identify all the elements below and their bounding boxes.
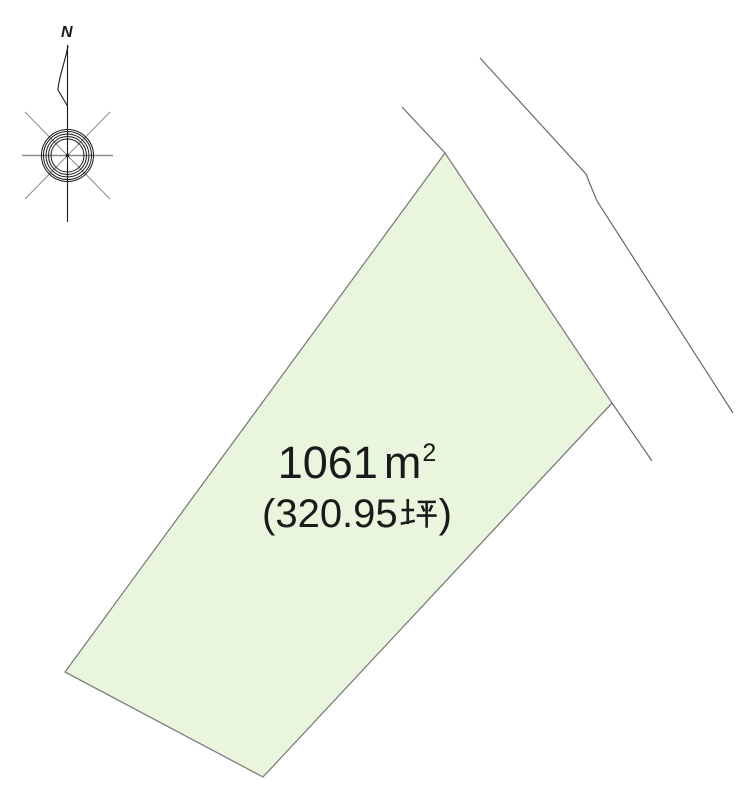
compass-center-dot	[66, 154, 70, 158]
land-plot-diagram: N 1061m2 (320.95	[0, 0, 756, 800]
area-m2-unit-exponent: 2	[422, 439, 436, 467]
area-tsubo: (320.95 )	[262, 492, 452, 536]
compass-needle-flag	[58, 46, 68, 106]
parcel-area-label: 1061m2 (320.95 )	[262, 431, 452, 536]
tsubo-glyph	[400, 493, 437, 530]
area-m2: 1061m2	[262, 431, 452, 485]
area-tsubo-close: )	[439, 492, 452, 536]
road-line-upper	[402, 107, 445, 153]
area-m2-unit: m	[384, 437, 422, 488]
road-line-spur	[612, 403, 652, 461]
north-label: N	[61, 24, 73, 41]
plot-svg: N	[0, 0, 756, 800]
compass: N	[22, 24, 113, 222]
area-m2-value: 1061	[278, 437, 378, 488]
area-tsubo-open: (320.95	[262, 492, 398, 536]
